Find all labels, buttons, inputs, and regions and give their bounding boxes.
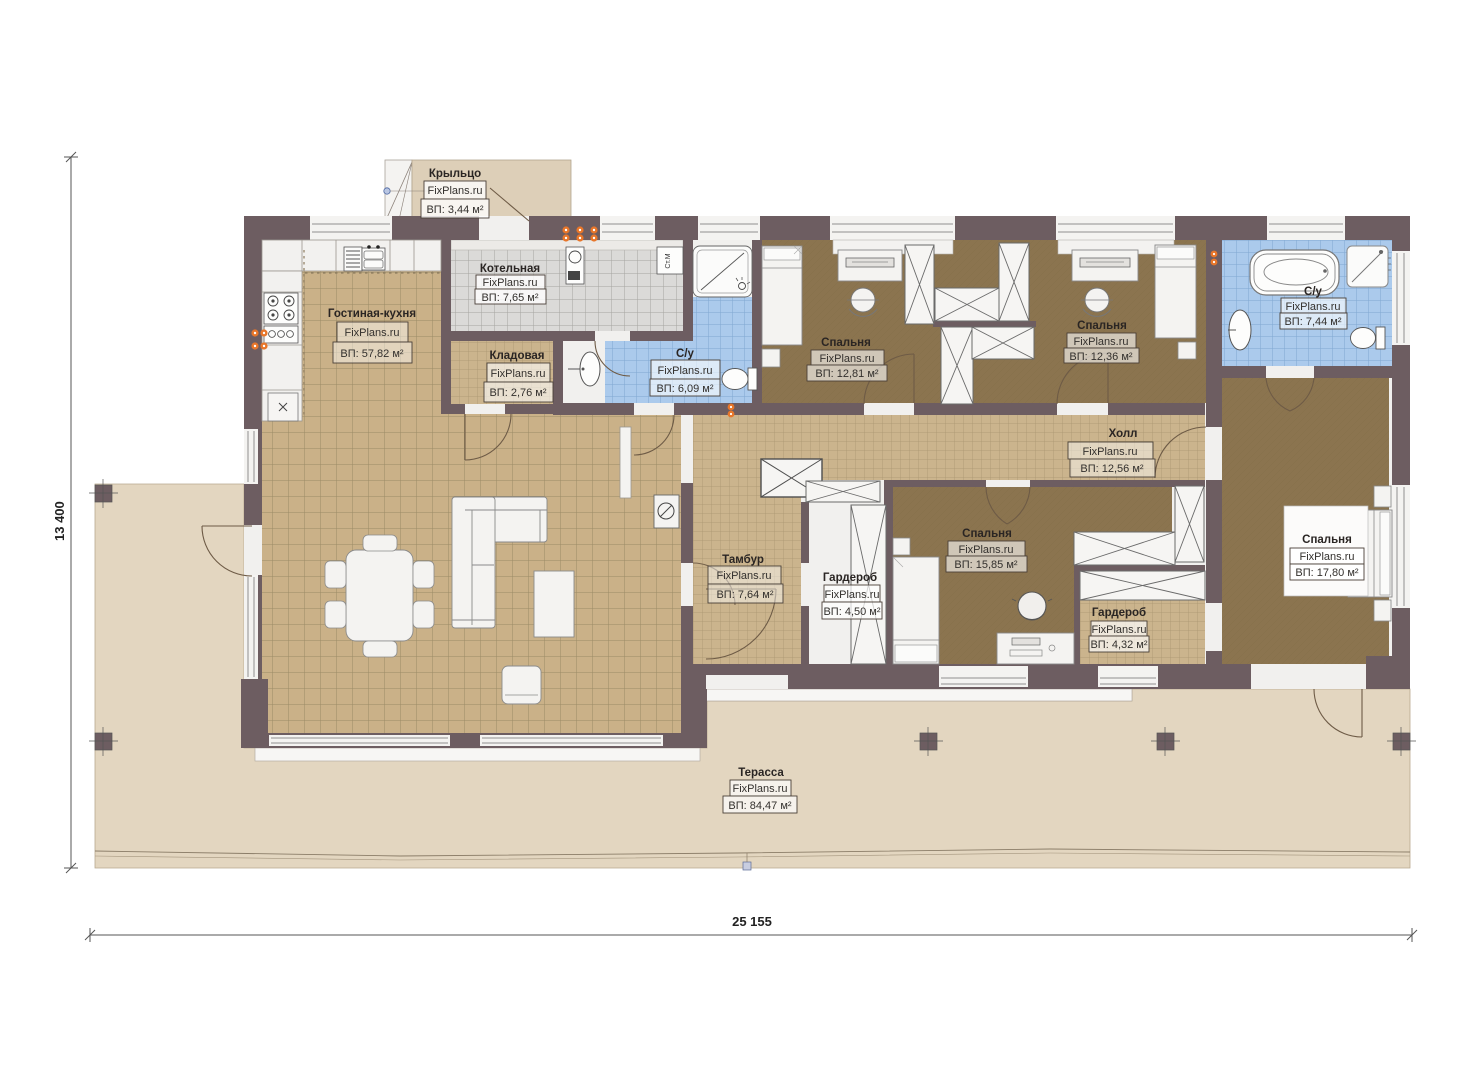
svg-text:FixPlans.ru: FixPlans.ru xyxy=(824,589,879,601)
svg-text:ВП: 12,56 м²: ВП: 12,56 м² xyxy=(1080,463,1144,475)
svg-text:ВП: 15,85 м²: ВП: 15,85 м² xyxy=(954,559,1018,571)
svg-text:ВП: 4,50 м²: ВП: 4,50 м² xyxy=(823,606,880,618)
svg-text:ВП: 57,82 м²: ВП: 57,82 м² xyxy=(340,348,404,360)
svg-text:ВП: 12,36 м²: ВП: 12,36 м² xyxy=(1069,351,1133,363)
svg-text:FixPlans.ru: FixPlans.ru xyxy=(482,277,537,289)
svg-text:Гардероб: Гардероб xyxy=(823,572,877,584)
svg-text:ВП: 6,09 м²: ВП: 6,09 м² xyxy=(656,383,713,395)
svg-text:13 400: 13 400 xyxy=(52,501,67,541)
svg-text:ВП: 7,64 м²: ВП: 7,64 м² xyxy=(716,589,773,601)
svg-text:Гостиная-кухня: Гостиная-кухня xyxy=(328,308,416,320)
svg-text:FixPlans.ru: FixPlans.ru xyxy=(344,327,399,339)
svg-text:FixPlans.ru: FixPlans.ru xyxy=(716,570,771,582)
svg-text:Котельная: Котельная xyxy=(480,263,540,275)
svg-text:Спальня: Спальня xyxy=(962,528,1012,540)
svg-text:Спальня: Спальня xyxy=(1077,320,1127,332)
svg-text:С/у: С/у xyxy=(1304,286,1323,298)
svg-text:FixPlans.ru: FixPlans.ru xyxy=(1073,336,1128,348)
svg-text:FixPlans.ru: FixPlans.ru xyxy=(427,185,482,197)
svg-text:ВП: 7,65 м²: ВП: 7,65 м² xyxy=(481,292,538,304)
svg-text:FixPlans.ru: FixPlans.ru xyxy=(1091,624,1146,636)
svg-text:ВП: 4,32 м²: ВП: 4,32 м² xyxy=(1090,639,1147,651)
svg-text:Холл: Холл xyxy=(1109,428,1138,440)
svg-text:Терасса: Терасса xyxy=(738,767,784,779)
svg-text:Крыльцо: Крыльцо xyxy=(429,168,481,180)
svg-text:С/у: С/у xyxy=(676,348,695,360)
svg-text:FixPlans.ru: FixPlans.ru xyxy=(732,783,787,795)
svg-text:Спальня: Спальня xyxy=(821,337,871,349)
svg-text:ВП: 17,80 м²: ВП: 17,80 м² xyxy=(1295,567,1359,579)
svg-text:FixPlans.ru: FixPlans.ru xyxy=(819,353,874,365)
svg-text:25 155: 25 155 xyxy=(732,914,772,929)
svg-text:ВП: 84,47 м²: ВП: 84,47 м² xyxy=(728,800,792,812)
svg-text:ВП: 2,76 м²: ВП: 2,76 м² xyxy=(489,387,546,399)
svg-text:FixPlans.ru: FixPlans.ru xyxy=(1299,551,1354,563)
svg-text:Тамбур: Тамбур xyxy=(722,554,764,566)
svg-text:ВП: 12,81 м²: ВП: 12,81 м² xyxy=(815,368,879,380)
svg-text:Гардероб: Гардероб xyxy=(1092,607,1146,619)
svg-text:FixPlans.ru: FixPlans.ru xyxy=(958,544,1013,556)
svg-text:ВП: 7,44 м²: ВП: 7,44 м² xyxy=(1284,316,1341,328)
svg-text:Ст.М: Ст.М xyxy=(665,253,672,268)
svg-text:Кладовая: Кладовая xyxy=(489,350,544,362)
svg-text:FixPlans.ru: FixPlans.ru xyxy=(490,368,545,380)
svg-text:FixPlans.ru: FixPlans.ru xyxy=(1285,301,1340,313)
svg-text:Спальня: Спальня xyxy=(1302,534,1352,546)
svg-text:FixPlans.ru: FixPlans.ru xyxy=(1082,446,1137,458)
svg-text:ВП: 3,44 м²: ВП: 3,44 м² xyxy=(426,204,483,216)
svg-text:FixPlans.ru: FixPlans.ru xyxy=(657,365,712,377)
